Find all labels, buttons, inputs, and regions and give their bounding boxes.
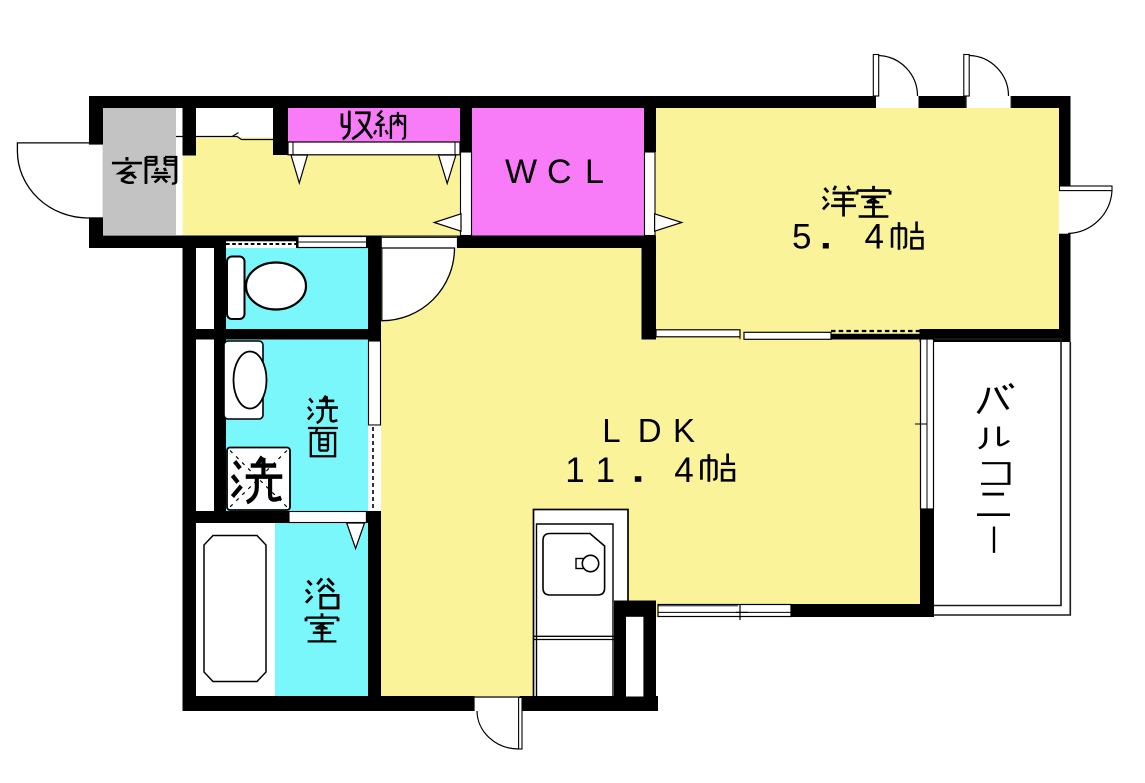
svg-text:L: L [602, 412, 620, 449]
svg-text:5: 5 [792, 218, 811, 257]
svg-text:4: 4 [865, 218, 884, 257]
svg-text:1: 1 [565, 451, 584, 490]
svg-text:D: D [638, 412, 662, 449]
svg-text:4: 4 [674, 451, 693, 490]
svg-text:C: C [547, 153, 572, 191]
svg-text:W: W [505, 153, 537, 191]
svg-text:L: L [585, 153, 604, 191]
svg-text:K: K [673, 412, 695, 449]
svg-text:1: 1 [596, 451, 615, 490]
